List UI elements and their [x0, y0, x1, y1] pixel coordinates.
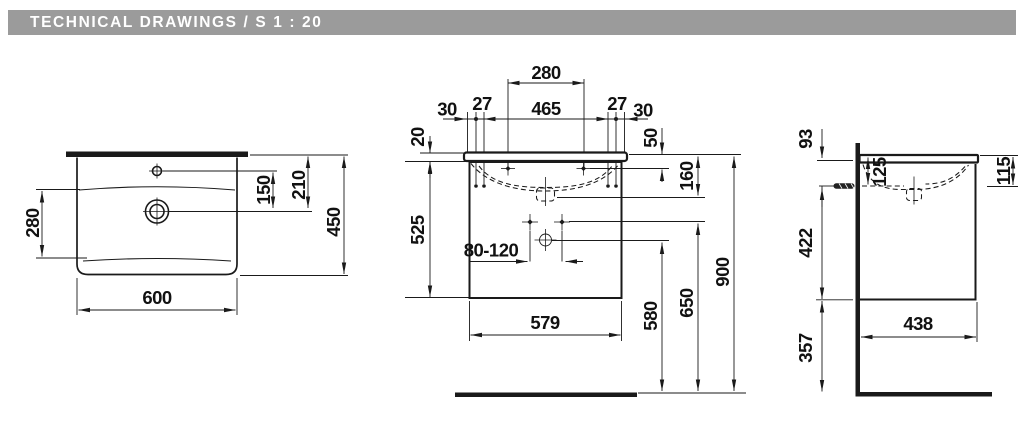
- view-side: 93 125 115 422 357 438: [795, 129, 1018, 397]
- dimension-lines-side: [816, 129, 1018, 392]
- dim-label-579: 579: [530, 312, 560, 333]
- dim-label-465: 465: [531, 98, 561, 119]
- dim-label-525: 525: [407, 215, 428, 245]
- technical-drawing-page: TECHNICAL DRAWINGS / S 1 : 20: [0, 0, 1024, 441]
- drawings-canvas: 150 210 450 280 600: [0, 0, 1024, 441]
- dim-label-27-right: 27: [607, 93, 627, 114]
- view-front: 280 465 30 27 27 30 20 525 50 160 580 65…: [405, 62, 746, 397]
- dim-label-357: 357: [795, 333, 816, 363]
- dim-label-27-left: 27: [472, 93, 492, 114]
- dim-label-280-front: 280: [531, 62, 561, 83]
- dim-label-93: 93: [795, 129, 816, 149]
- dim-label-20: 20: [407, 127, 428, 147]
- dim-label-30-left: 30: [437, 99, 457, 120]
- dim-label-160: 160: [676, 161, 697, 191]
- dim-label-30-right: 30: [633, 100, 653, 121]
- dim-label-438: 438: [903, 313, 933, 334]
- dim-label-580: 580: [640, 301, 661, 331]
- dim-label-450: 450: [323, 207, 344, 237]
- dim-label-115: 115: [993, 157, 1014, 186]
- dim-label-50: 50: [640, 128, 661, 148]
- washbasin-slab-front: [464, 153, 627, 162]
- dim-label-210: 210: [288, 170, 309, 200]
- tap-hole-symbol: [149, 164, 165, 179]
- floor-line-front: [455, 393, 637, 398]
- floor-line-side: [856, 392, 993, 397]
- view-washbasin-top: 150 210 450 280 600: [22, 152, 348, 316]
- dim-label-150: 150: [253, 175, 274, 205]
- dim-label-280-top-view: 280: [22, 208, 43, 238]
- dim-label-422: 422: [795, 228, 816, 258]
- wall-line: [856, 143, 861, 393]
- drain-symbol: [143, 198, 171, 226]
- dim-label-80-120: 80-120: [464, 240, 519, 261]
- dim-label-125: 125: [869, 157, 890, 187]
- wall-fixing-bolt: [819, 183, 855, 188]
- dim-label-650: 650: [676, 288, 697, 318]
- dim-label-600: 600: [142, 287, 172, 308]
- dim-label-900: 900: [712, 257, 733, 287]
